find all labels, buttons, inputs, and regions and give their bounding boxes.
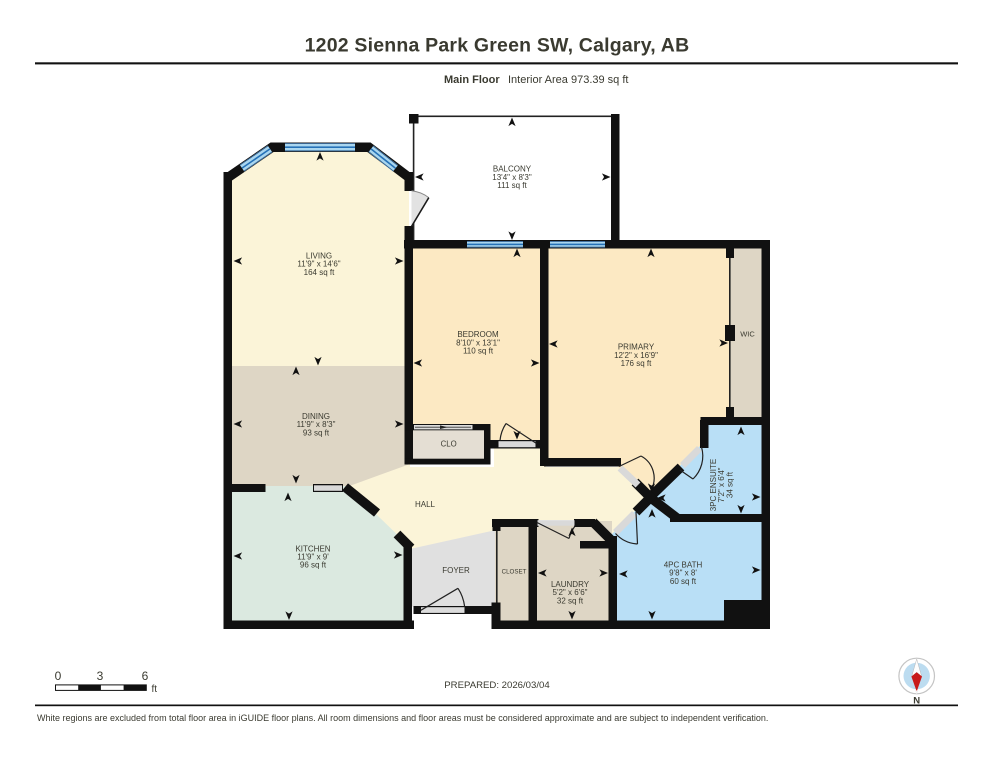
svg-text:93 sq ft: 93 sq ft xyxy=(303,428,330,437)
svg-text:60 sq ft: 60 sq ft xyxy=(670,577,697,586)
svg-text:96 sq ft: 96 sq ft xyxy=(300,561,327,570)
svg-text:CLO: CLO xyxy=(441,439,457,448)
svg-text:32 sq ft: 32 sq ft xyxy=(557,596,584,605)
svg-text:FOYER: FOYER xyxy=(442,566,470,575)
svg-text:White regions are excluded fro: White regions are excluded from total fl… xyxy=(37,713,768,723)
svg-text:0: 0 xyxy=(55,669,62,683)
svg-text:6: 6 xyxy=(142,669,149,683)
svg-text:111 sq ft: 111 sq ft xyxy=(497,181,527,190)
svg-text:ft: ft xyxy=(152,684,158,695)
svg-text:Main Floor: Main Floor xyxy=(444,74,500,86)
svg-text:110 sq ft: 110 sq ft xyxy=(463,347,494,356)
svg-text:176 sq ft: 176 sq ft xyxy=(621,359,652,368)
svg-text:CLOSET: CLOSET xyxy=(502,569,527,576)
svg-text:Interior Area 973.39 sq ft: Interior Area 973.39 sq ft xyxy=(508,74,628,86)
svg-text:1202 Sienna Park Green SW, Cal: 1202 Sienna Park Green SW, Calgary, AB xyxy=(305,35,690,57)
svg-text:34 sq ft: 34 sq ft xyxy=(725,471,734,498)
svg-text:3: 3 xyxy=(97,669,104,683)
svg-text:PREPARED: 2026/03/04: PREPARED: 2026/03/04 xyxy=(444,680,550,691)
svg-text:164 sq ft: 164 sq ft xyxy=(304,268,335,277)
svg-text:HALL: HALL xyxy=(415,500,436,509)
svg-text:WIC: WIC xyxy=(740,330,755,339)
